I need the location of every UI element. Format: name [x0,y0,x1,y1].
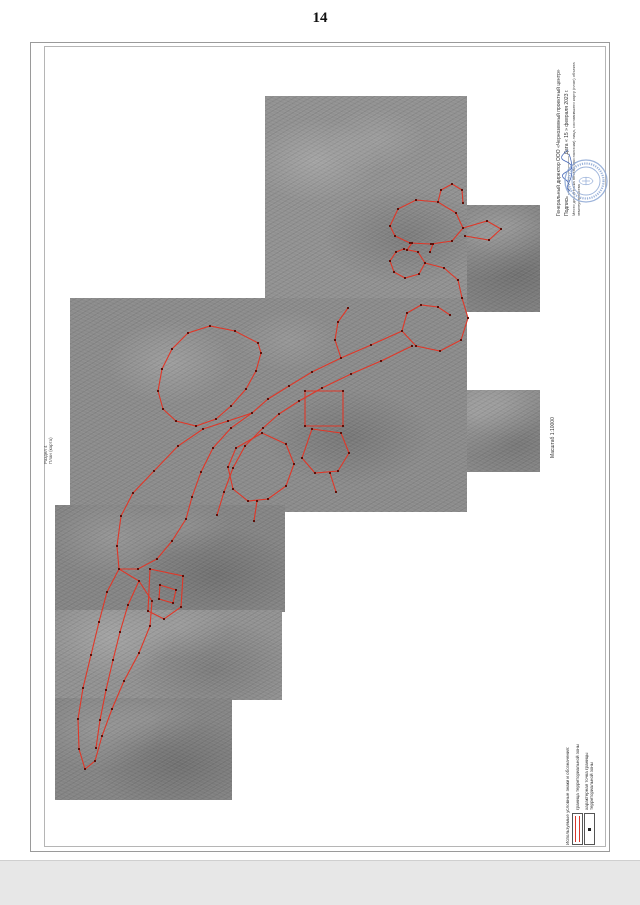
page-bottom-gap [0,860,640,905]
legend-item-boundary: граница территориальной зоны [571,718,583,845]
round-seal-stamp [562,157,610,205]
legend-item-label: граница территориальной зоны [575,744,580,810]
legend: Используемые условные знаки и обозначени… [565,718,605,845]
section-label-line2: План (карта) [48,420,53,464]
legend-item-point: характерная точка границы территориально… [583,718,595,845]
page-number: 14 [0,10,640,27]
scale-label: Масштаб 1:10000 [550,410,558,458]
turning-point-symbol [584,813,595,845]
boundary-line-symbol [572,813,583,845]
legend-item-label: характерная точка границы территориально… [584,718,594,810]
document-page: 14 [0,0,640,905]
sheet-inner-frame [44,46,606,847]
section-label: Раздел 4 План (карта) [43,420,55,464]
